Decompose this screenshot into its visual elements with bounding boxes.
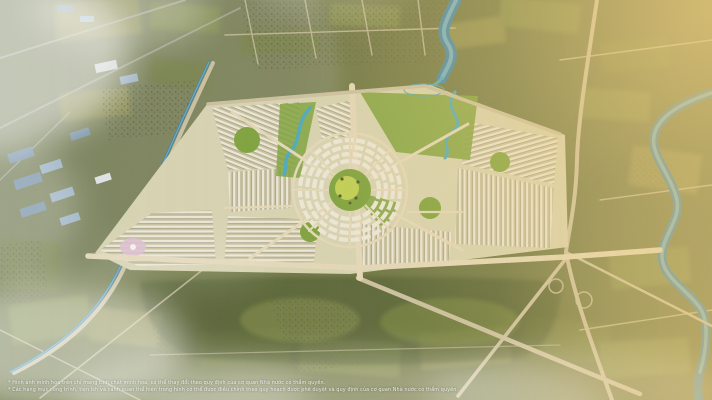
scene-svg — [0, 0, 712, 400]
aerial-masterplan-render: * Hình ảnh minh họa trên chỉ mang tính c… — [0, 0, 712, 400]
warm-tint-right — [0, 0, 712, 400]
